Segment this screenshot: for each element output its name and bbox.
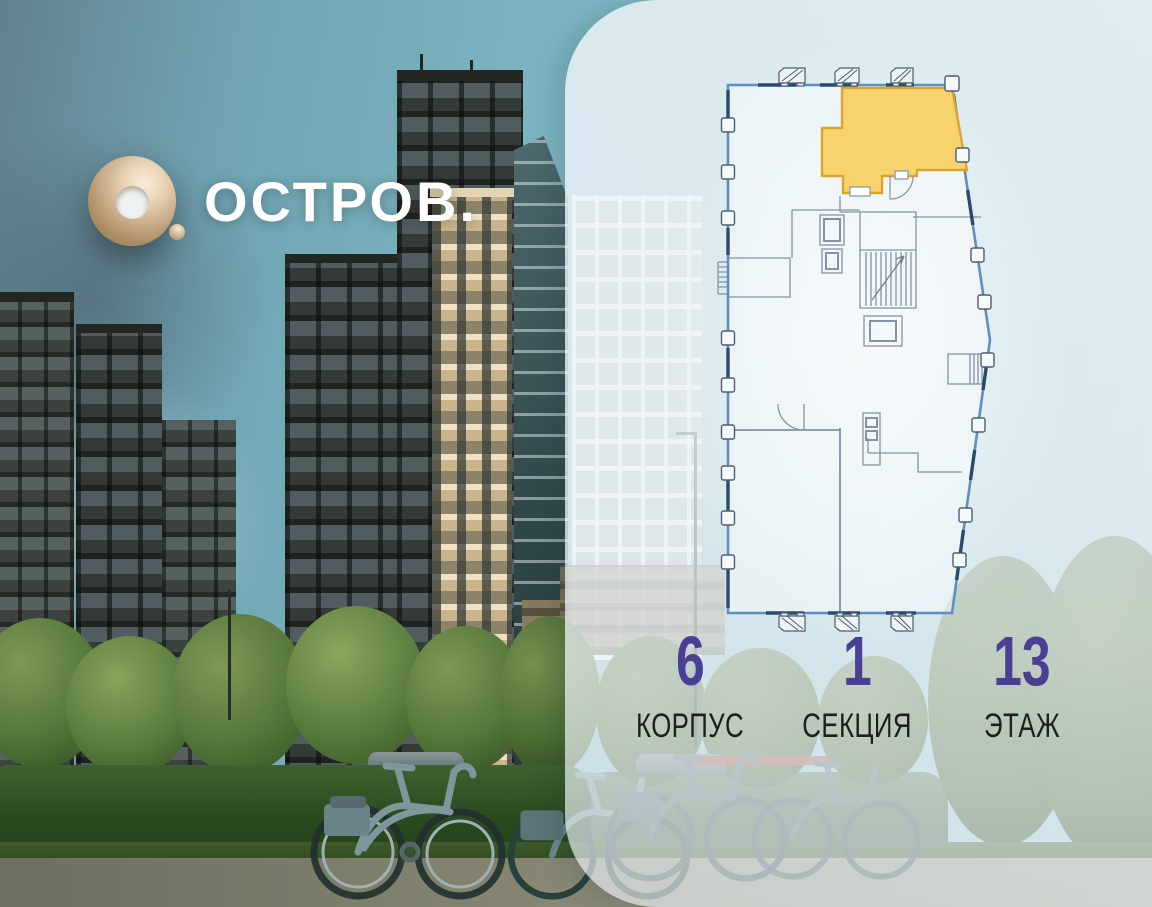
main-tower-parapet: [285, 254, 399, 263]
floor-number: 13: [993, 628, 1051, 695]
detail-section: 1 СЕКЦИЯ: [777, 628, 937, 746]
roof-antenna: [420, 54, 423, 72]
brand-ring-hole: [116, 186, 149, 219]
section-number: 1: [843, 628, 872, 695]
roof-antenna: [470, 60, 473, 72]
apartment-card: 6 КОРПУС 1 СЕКЦИЯ 13 ЭТАЖ ОСТРОВ.: [0, 0, 1152, 907]
building-label: КОРПУС: [636, 707, 744, 746]
building-number: 6: [676, 628, 705, 695]
info-panel: 6 КОРПУС 1 СЕКЦИЯ 13 ЭТАЖ: [565, 0, 1152, 907]
bicycle: [300, 712, 514, 906]
brand-ring-icon: [88, 156, 176, 246]
main-tower-roofline: [397, 70, 523, 81]
detail-building: 6 КОРПУС: [610, 628, 770, 746]
detail-floor: 13 ЭТАЖ: [942, 628, 1102, 746]
section-label: СЕКЦИЯ: [802, 707, 912, 746]
brand-title: ОСТРОВ.: [204, 169, 478, 234]
brand-period-icon: [169, 224, 185, 240]
floor-label: ЭТАЖ: [984, 707, 1060, 746]
lamp-post: [228, 590, 231, 720]
building-roof: [76, 324, 162, 333]
floor-plan-svg[interactable]: [700, 60, 1000, 640]
brand-logo[interactable]: ОСТРОВ.: [88, 156, 478, 246]
building-roof: [0, 292, 74, 302]
